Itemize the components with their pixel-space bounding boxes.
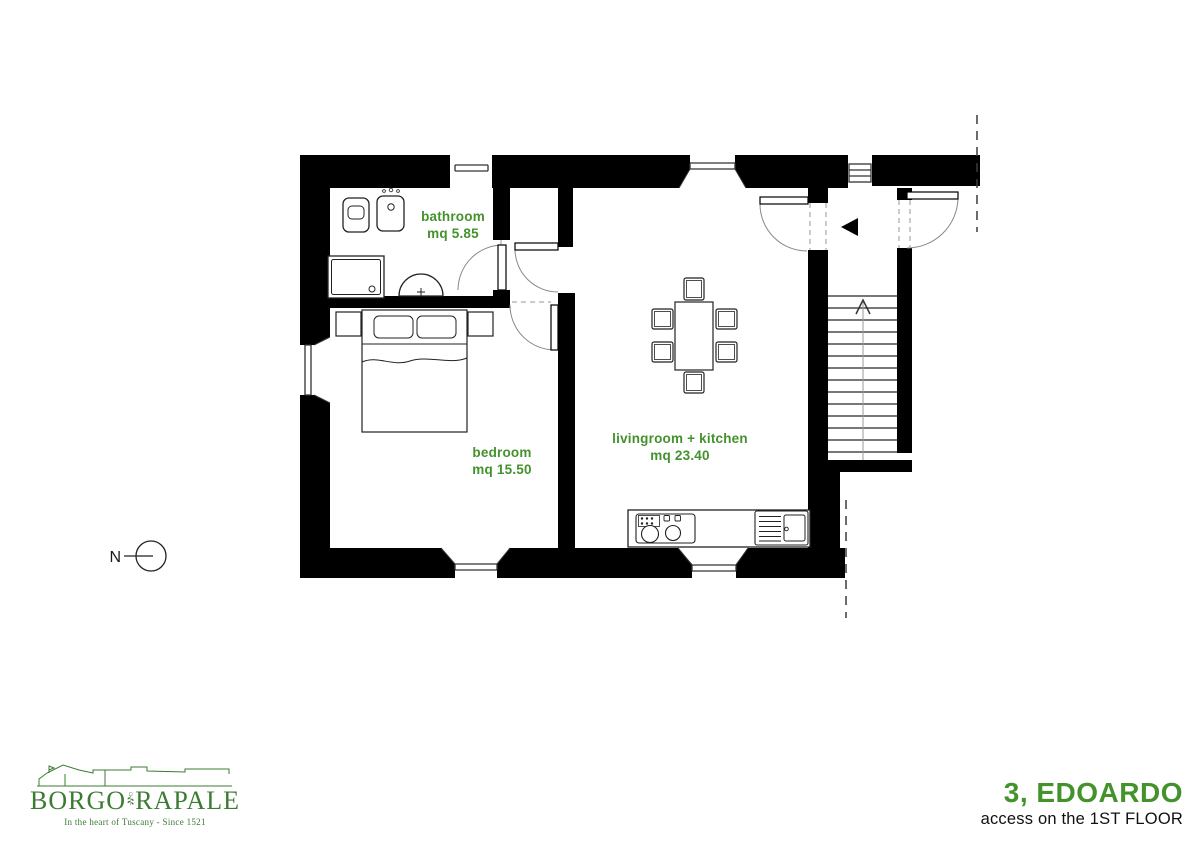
door-arc <box>458 245 503 290</box>
door-leaf-external-entrance <box>907 192 958 199</box>
door-leaf-bathroom <box>498 245 506 290</box>
dining-table <box>675 302 713 370</box>
chair <box>652 342 673 362</box>
bedroom-area: mq 15.50 <box>472 462 531 477</box>
shower-icon <box>328 256 384 298</box>
door-leaf-living-entrance <box>760 197 808 204</box>
door-arc <box>760 204 807 251</box>
apartment-title: 3, EDOARDO <box>981 779 1183 807</box>
bathroom-area: mq 5.85 <box>427 226 479 241</box>
north-label: N <box>109 549 121 566</box>
dining-set <box>652 278 737 393</box>
chair <box>716 309 737 329</box>
nightstand <box>468 312 493 336</box>
door-leaf-vestibule <box>515 243 558 250</box>
chair <box>652 309 673 329</box>
window-bathroom <box>455 165 488 171</box>
sink-icon <box>399 274 443 296</box>
entrance-arrow-icon <box>841 218 858 236</box>
chair <box>716 342 737 362</box>
door-leaf-bedroom <box>551 305 558 350</box>
logo-tagline: In the heart of Tuscany - Since 1521 <box>30 817 240 827</box>
double-bed <box>362 310 467 432</box>
livingroom-area: mq 23.40 <box>650 448 709 463</box>
nightstand <box>336 312 361 336</box>
door-arc <box>515 250 558 292</box>
chair <box>684 372 704 393</box>
cooktop-icon <box>636 514 695 543</box>
door-arc <box>510 305 555 350</box>
window-bedroom-bottom <box>455 564 497 570</box>
logo: BORGO RAPALE In the heart of Tuscany - S… <box>30 760 240 827</box>
logo-name-left: BORGO <box>30 788 126 814</box>
window-kitchen <box>692 565 736 571</box>
pillow <box>417 316 456 338</box>
logo-name: BORGO RAPALE <box>30 781 240 814</box>
bedroom-label: bedroom <box>472 445 531 460</box>
logo-name-right: RAPALE <box>135 788 240 814</box>
kitchen-sink-icon <box>755 511 808 545</box>
bidet-icon <box>343 198 369 232</box>
staircase <box>828 296 897 460</box>
title-block: 3, EDOARDO access on the 1ST FLOOR <box>981 779 1183 829</box>
window-landing <box>849 164 871 182</box>
window-bedroom-left <box>305 345 311 395</box>
livingroom-label: livingroom + kitchen <box>612 431 748 446</box>
kitchen-counter <box>628 510 810 547</box>
chair <box>684 278 704 300</box>
north-indicator: N <box>109 541 166 571</box>
bathroom-fixtures <box>328 188 443 298</box>
floor-plan-sheet: N bathroom mq 5.85 bedroom mq 15.50 livi… <box>0 0 1200 848</box>
pillow <box>374 316 413 338</box>
bedroom-furniture <box>336 310 493 432</box>
toilet-icon <box>377 188 404 231</box>
olive-sprig-icon <box>127 781 134 817</box>
door-arc <box>907 199 958 248</box>
window-living-top <box>690 163 735 169</box>
floor-plan-drawing: N bathroom mq 5.85 bedroom mq 15.50 livi… <box>0 0 1200 848</box>
bathroom-label: bathroom <box>421 209 485 224</box>
apartment-access: access on the 1ST FLOOR <box>981 810 1183 829</box>
